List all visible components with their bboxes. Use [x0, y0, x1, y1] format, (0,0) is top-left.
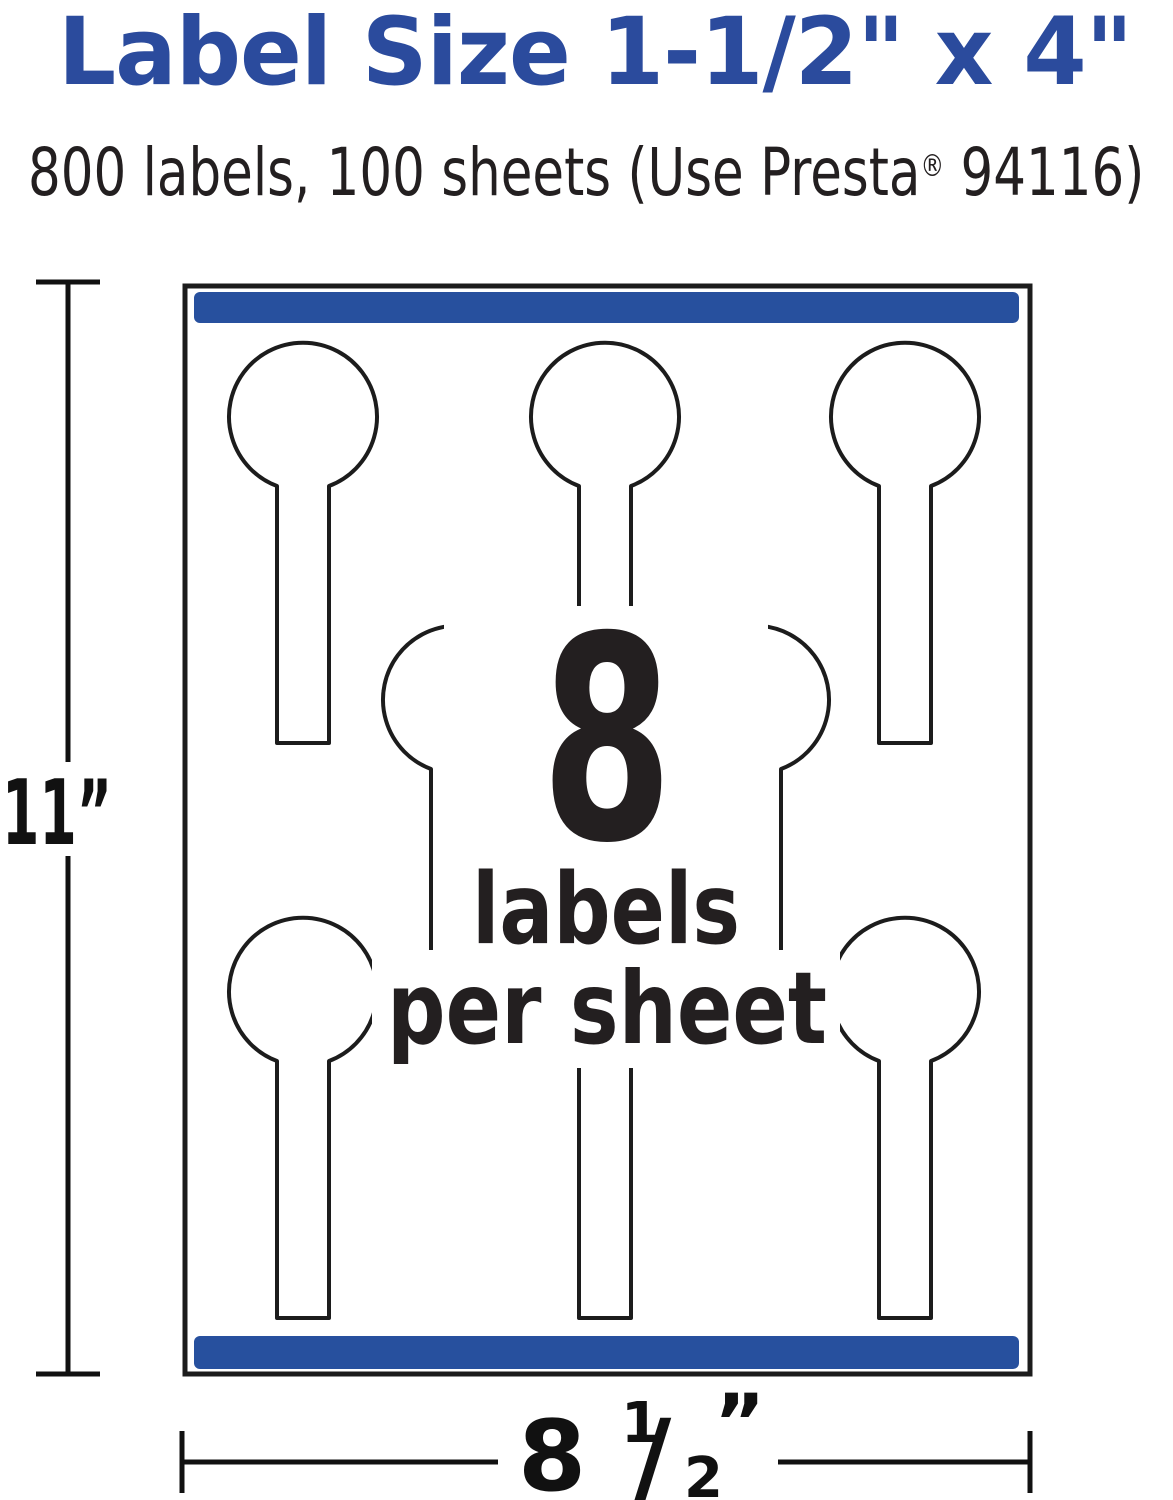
- callout-line2: per sheet: [387, 950, 827, 1067]
- width-dim-frac-slash: /: [634, 1398, 672, 1500]
- width-dimension: [182, 1431, 1030, 1493]
- page-root: Label Size 1-1/2" x 4" 800 labels, 100 s…: [0, 0, 1173, 1500]
- width-dim-whole: 8: [518, 1400, 586, 1500]
- sheet-diagram: 8 labels per sheet 11” 8 1 / 2 ”: [0, 0, 1173, 1500]
- sheet-bottom-color-bar: [194, 1336, 1019, 1369]
- width-dim-unit: ”: [714, 1379, 765, 1469]
- sheet-top-color-bar: [194, 292, 1019, 323]
- height-dim-label: 11”: [2, 761, 112, 866]
